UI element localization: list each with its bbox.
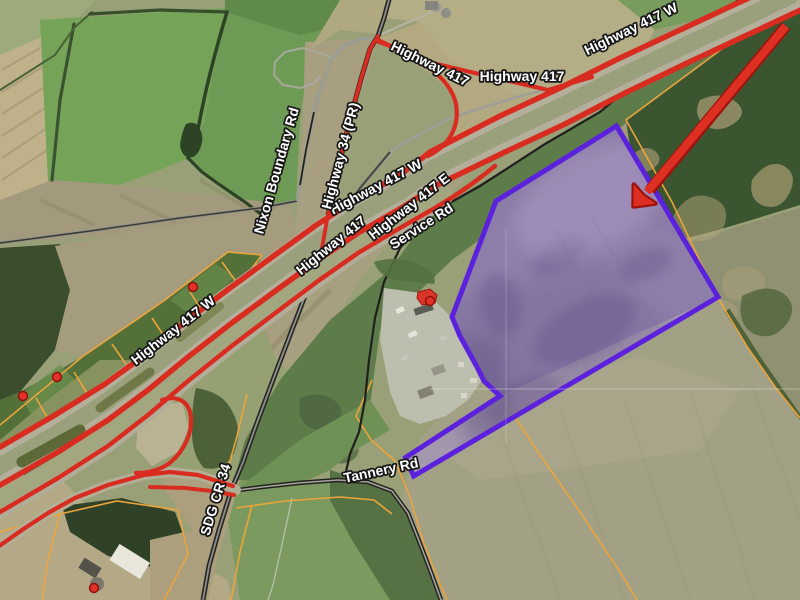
svg-text:Highway 417: Highway 417: [480, 68, 565, 84]
